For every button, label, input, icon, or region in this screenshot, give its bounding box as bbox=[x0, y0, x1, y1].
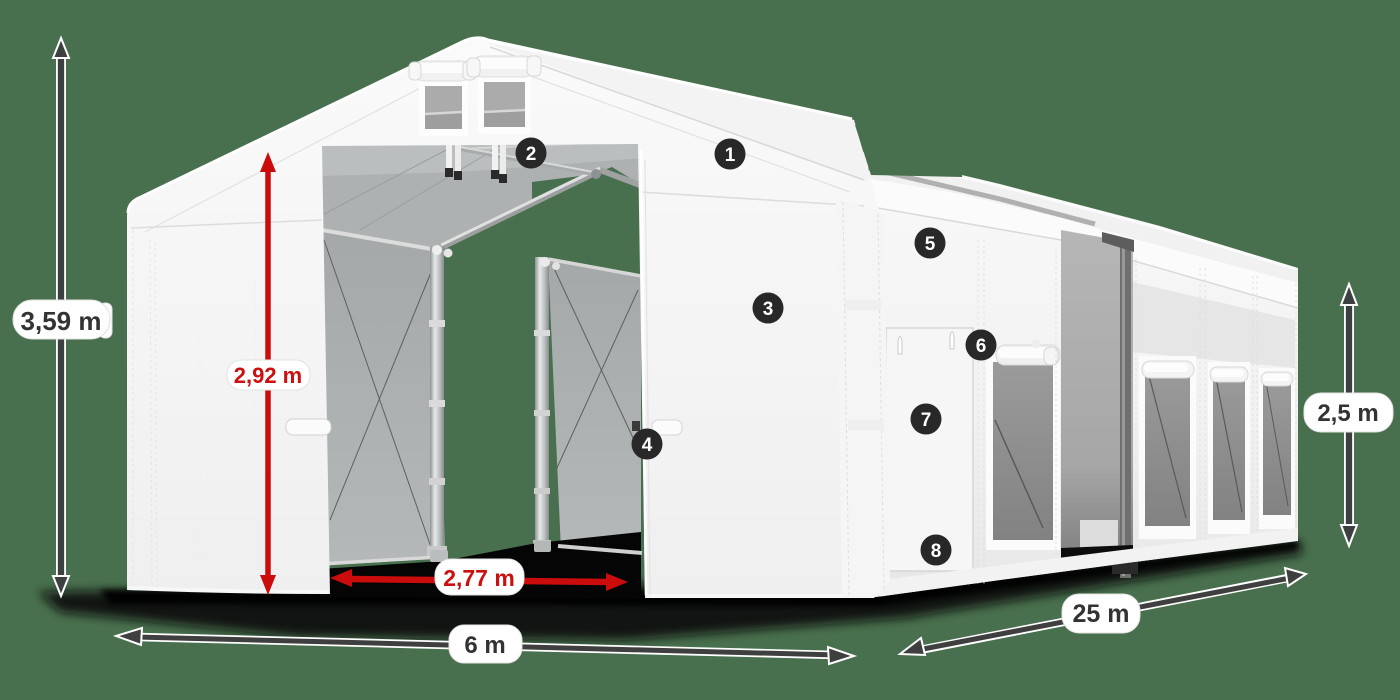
svg-text:7: 7 bbox=[921, 410, 932, 431]
svg-text:1: 1 bbox=[725, 145, 736, 166]
svg-text:2,5 m: 2,5 m bbox=[1317, 400, 1378, 427]
svg-text:3: 3 bbox=[763, 299, 774, 320]
svg-text:2,77 m: 2,77 m bbox=[443, 565, 515, 591]
svg-text:4: 4 bbox=[642, 435, 653, 456]
svg-text:2,92 m: 2,92 m bbox=[234, 363, 303, 388]
svg-text:6: 6 bbox=[976, 336, 987, 357]
svg-text:25 m: 25 m bbox=[1073, 600, 1130, 628]
svg-text:8: 8 bbox=[931, 541, 942, 562]
svg-text:6 m: 6 m bbox=[464, 632, 505, 659]
svg-text:5: 5 bbox=[925, 234, 936, 255]
svg-text:2: 2 bbox=[526, 144, 537, 165]
svg-text:3,59 m: 3,59 m bbox=[21, 306, 102, 336]
